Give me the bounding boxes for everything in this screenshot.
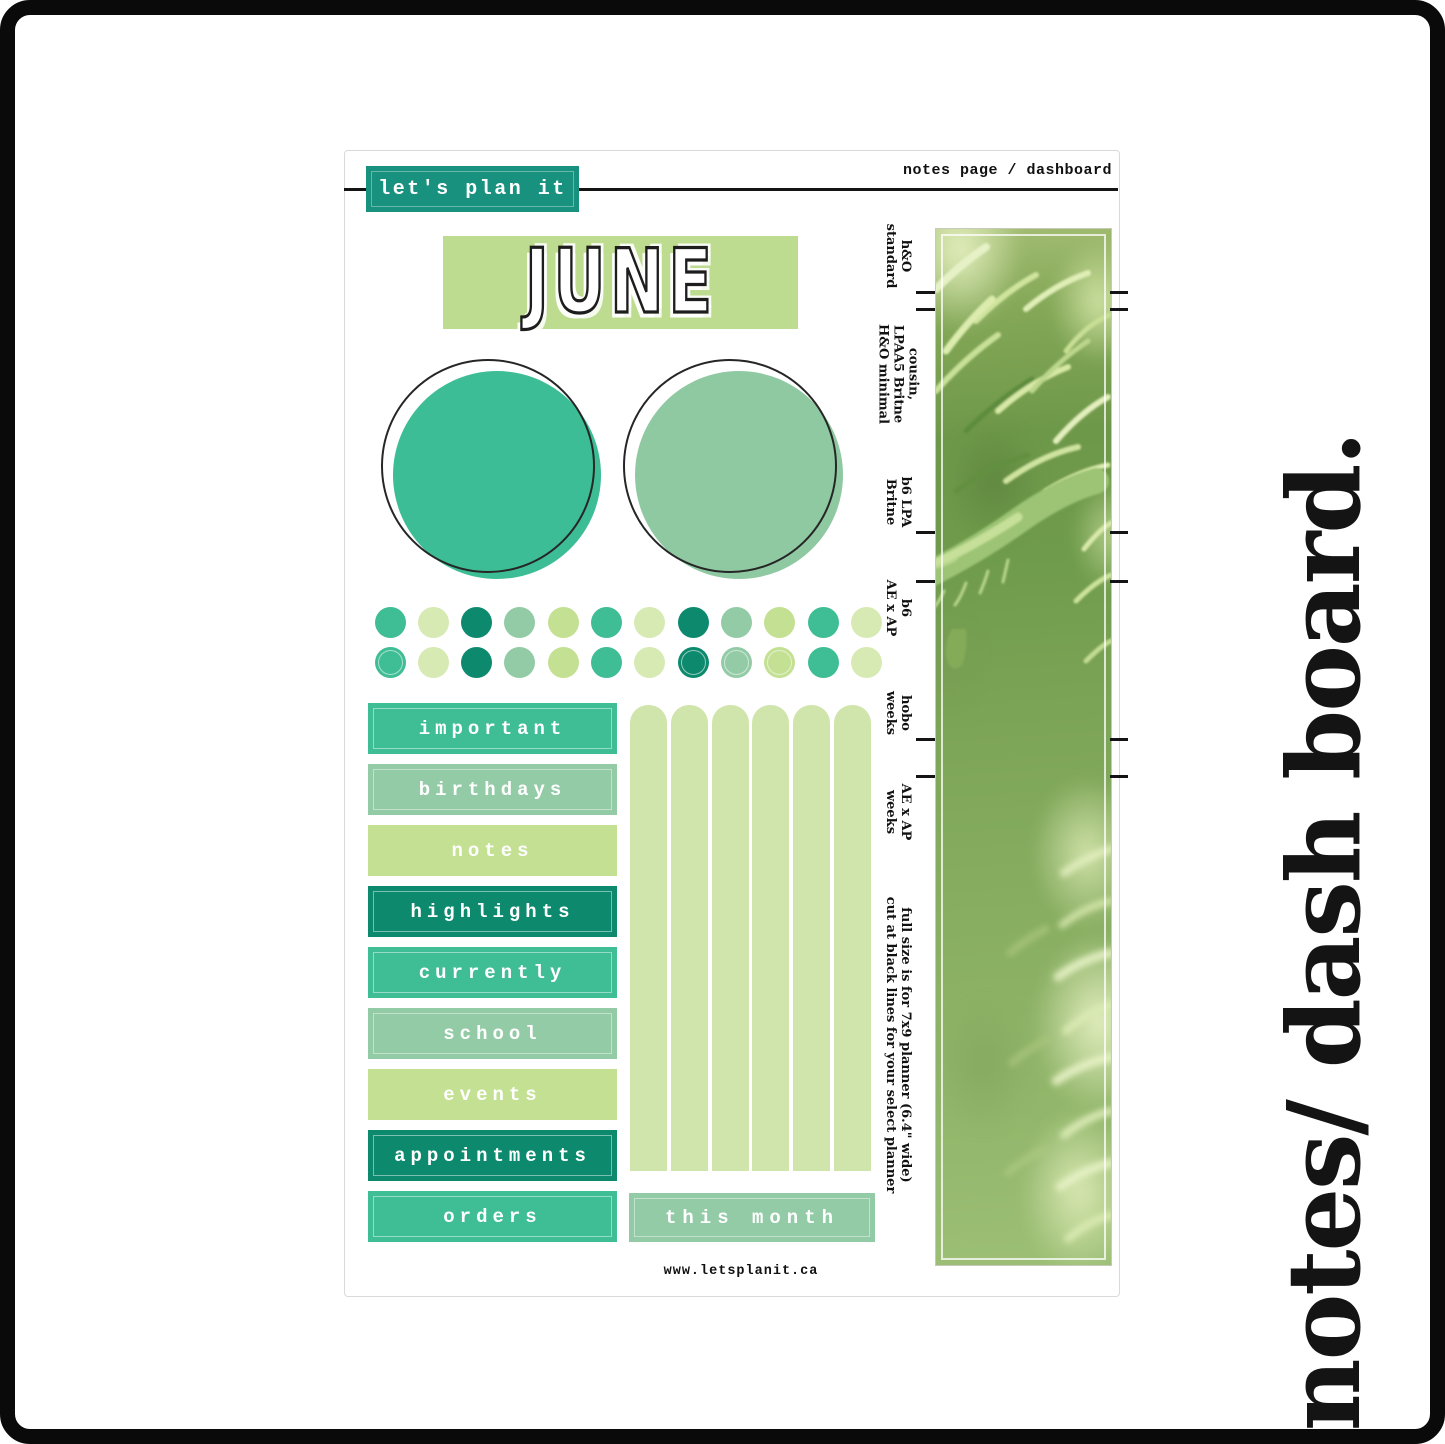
cut-tick-right — [1110, 580, 1128, 583]
dot-sticker — [678, 647, 709, 678]
side-product-title: notes/ dash board. — [1265, 433, 1383, 1431]
dot-sticker — [721, 607, 752, 638]
cut-tick-left — [916, 291, 935, 294]
cut-label-hobo-weeks: hobo weeks — [882, 691, 912, 735]
dot-sticker — [375, 647, 406, 678]
label-sticker-notes: notes — [368, 825, 617, 876]
label-text: appointments — [394, 1145, 591, 1167]
brand-logo-box: let's plan it — [366, 166, 579, 212]
dot-sticker — [418, 607, 449, 638]
cut-tick-right — [1110, 291, 1128, 294]
dot-sticker — [851, 647, 882, 678]
label-sticker-school: school — [368, 1008, 617, 1059]
month-title: JUNE — [525, 231, 717, 334]
label-text: events — [443, 1084, 541, 1106]
label-text: birthdays — [419, 779, 567, 801]
label-text: highlights — [410, 901, 574, 923]
bar-sticker — [752, 705, 789, 1171]
dot-sticker — [808, 647, 839, 678]
cut-tick-right — [1110, 738, 1128, 741]
photo-foliage-art — [936, 229, 1111, 1265]
month-header-box: JUNE — [443, 236, 798, 329]
dot-ring — [767, 650, 792, 675]
website-url: www.letsplanit.ca — [600, 1264, 882, 1279]
bar-sticker — [793, 705, 830, 1171]
dot-sticker — [764, 607, 795, 638]
dot-sticker — [721, 647, 752, 678]
cut-tick-left — [916, 531, 935, 534]
dot-sticker — [851, 607, 882, 638]
label-sticker-highlights: highlights — [368, 886, 617, 937]
this-month-text: this month — [665, 1207, 839, 1229]
dot-ring — [681, 650, 706, 675]
dot-sticker — [548, 647, 579, 678]
label-sticker-birthdays: birthdays — [368, 764, 617, 815]
this-month-sticker: this month — [629, 1193, 875, 1242]
cut-tick-left — [916, 738, 935, 741]
cut-tick-right — [1110, 308, 1128, 311]
cut-label-full-size-note: full size is for 7x9 planner (6.4" wide)… — [882, 897, 912, 1194]
dot-ring — [378, 650, 403, 675]
label-text: orders — [443, 1206, 541, 1228]
cut-label-cousin-lpaa5-ho-minimal: cousin, LPAA5 Britne H&O minimal — [875, 324, 920, 424]
label-sticker-currently: currently — [368, 947, 617, 998]
label-sticker-important: important — [368, 703, 617, 754]
label-text: important — [419, 718, 567, 740]
cut-tick-left — [916, 308, 935, 311]
cut-tick-right — [1110, 775, 1128, 778]
cut-tick-left — [916, 775, 935, 778]
bar-sticker — [630, 705, 667, 1171]
dot-sticker — [764, 647, 795, 678]
label-sticker-orders: orders — [368, 1191, 617, 1242]
label-text: notes — [451, 840, 533, 862]
label-sticker-events: events — [368, 1069, 617, 1120]
cut-label-ho-standard: h&O standard — [882, 224, 912, 289]
cut-label-b6-lpa-britne: b6 LPA Britne — [882, 477, 912, 528]
label-text: currently — [419, 962, 567, 984]
plant-photo-strip — [935, 228, 1112, 1266]
cut-label-ae-x-ap-weeks: AE x AP weeks — [882, 784, 912, 841]
dot-sticker — [678, 607, 709, 638]
dot-sticker — [375, 607, 406, 638]
cut-tick-left — [916, 580, 935, 583]
circle-outline-right — [623, 359, 837, 573]
label-text: school — [443, 1023, 541, 1045]
bar-sticker — [712, 705, 749, 1171]
dot-ring — [724, 650, 749, 675]
dot-sticker — [461, 607, 492, 638]
cut-label-b6-ae-x-ap: b6 AE x AP — [882, 580, 912, 637]
dot-sticker — [461, 647, 492, 678]
dot-sticker — [591, 607, 622, 638]
page-type-label: notes page / dashboard — [700, 162, 1112, 179]
dot-sticker — [418, 647, 449, 678]
dot-sticker — [591, 647, 622, 678]
bar-sticker — [834, 705, 871, 1171]
label-sticker-appointments: appointments — [368, 1130, 617, 1181]
dot-sticker — [808, 607, 839, 638]
bar-sticker — [671, 705, 708, 1171]
brand-logo-text: let's plan it — [378, 178, 567, 201]
circle-outline-left — [381, 359, 595, 573]
dot-sticker — [548, 607, 579, 638]
cut-tick-right — [1110, 531, 1128, 534]
